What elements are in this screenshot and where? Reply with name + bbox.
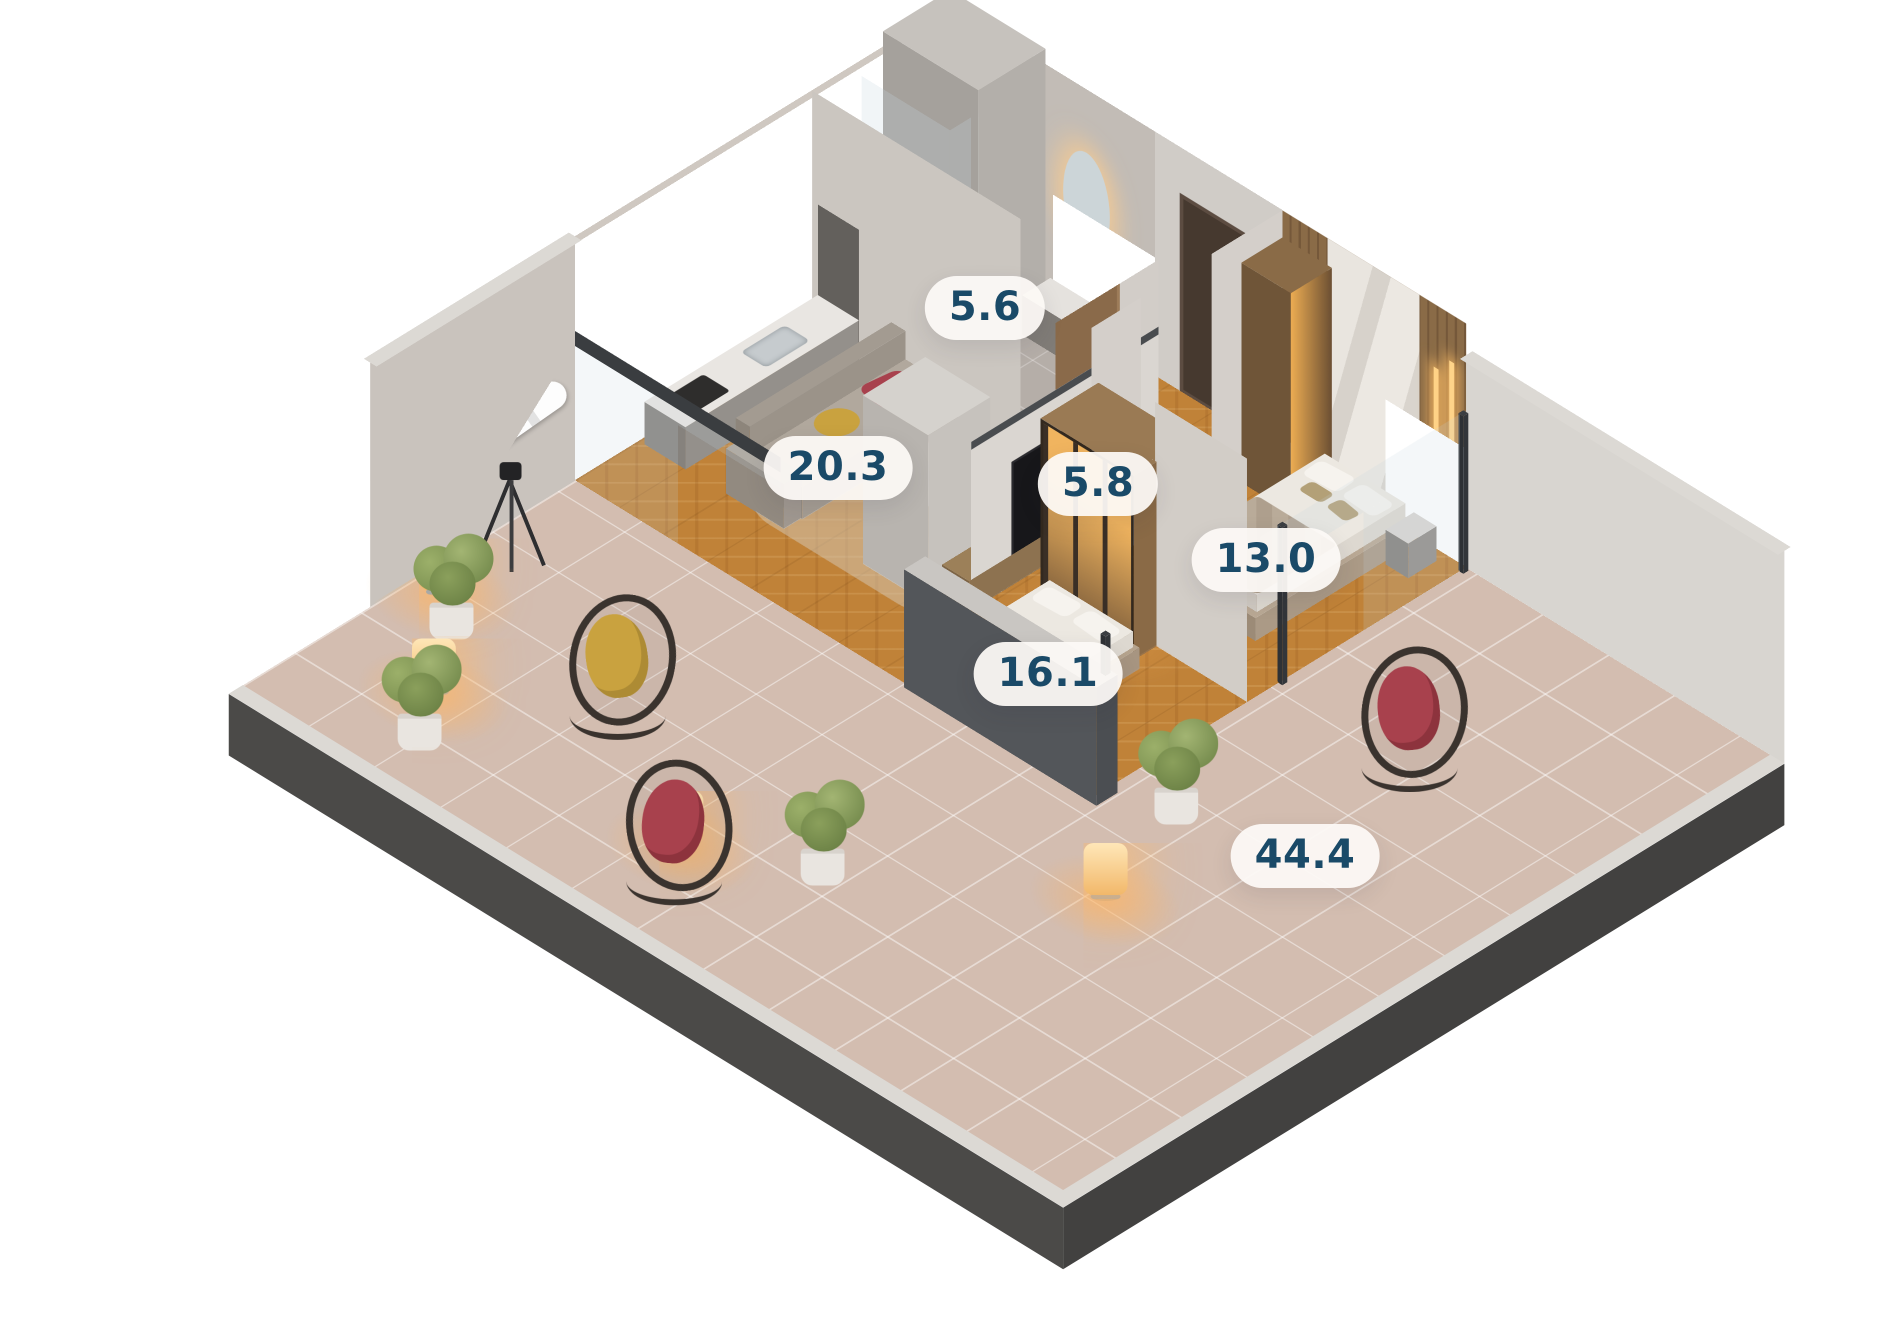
telescope-tripod-leg <box>510 480 514 574</box>
apartment-3d-scene <box>229 250 1785 1208</box>
floorplan-render: 5.6 5.8 20.3 13.0 16.1 44.4 <box>0 0 1900 1319</box>
telescope-mount <box>500 462 522 480</box>
